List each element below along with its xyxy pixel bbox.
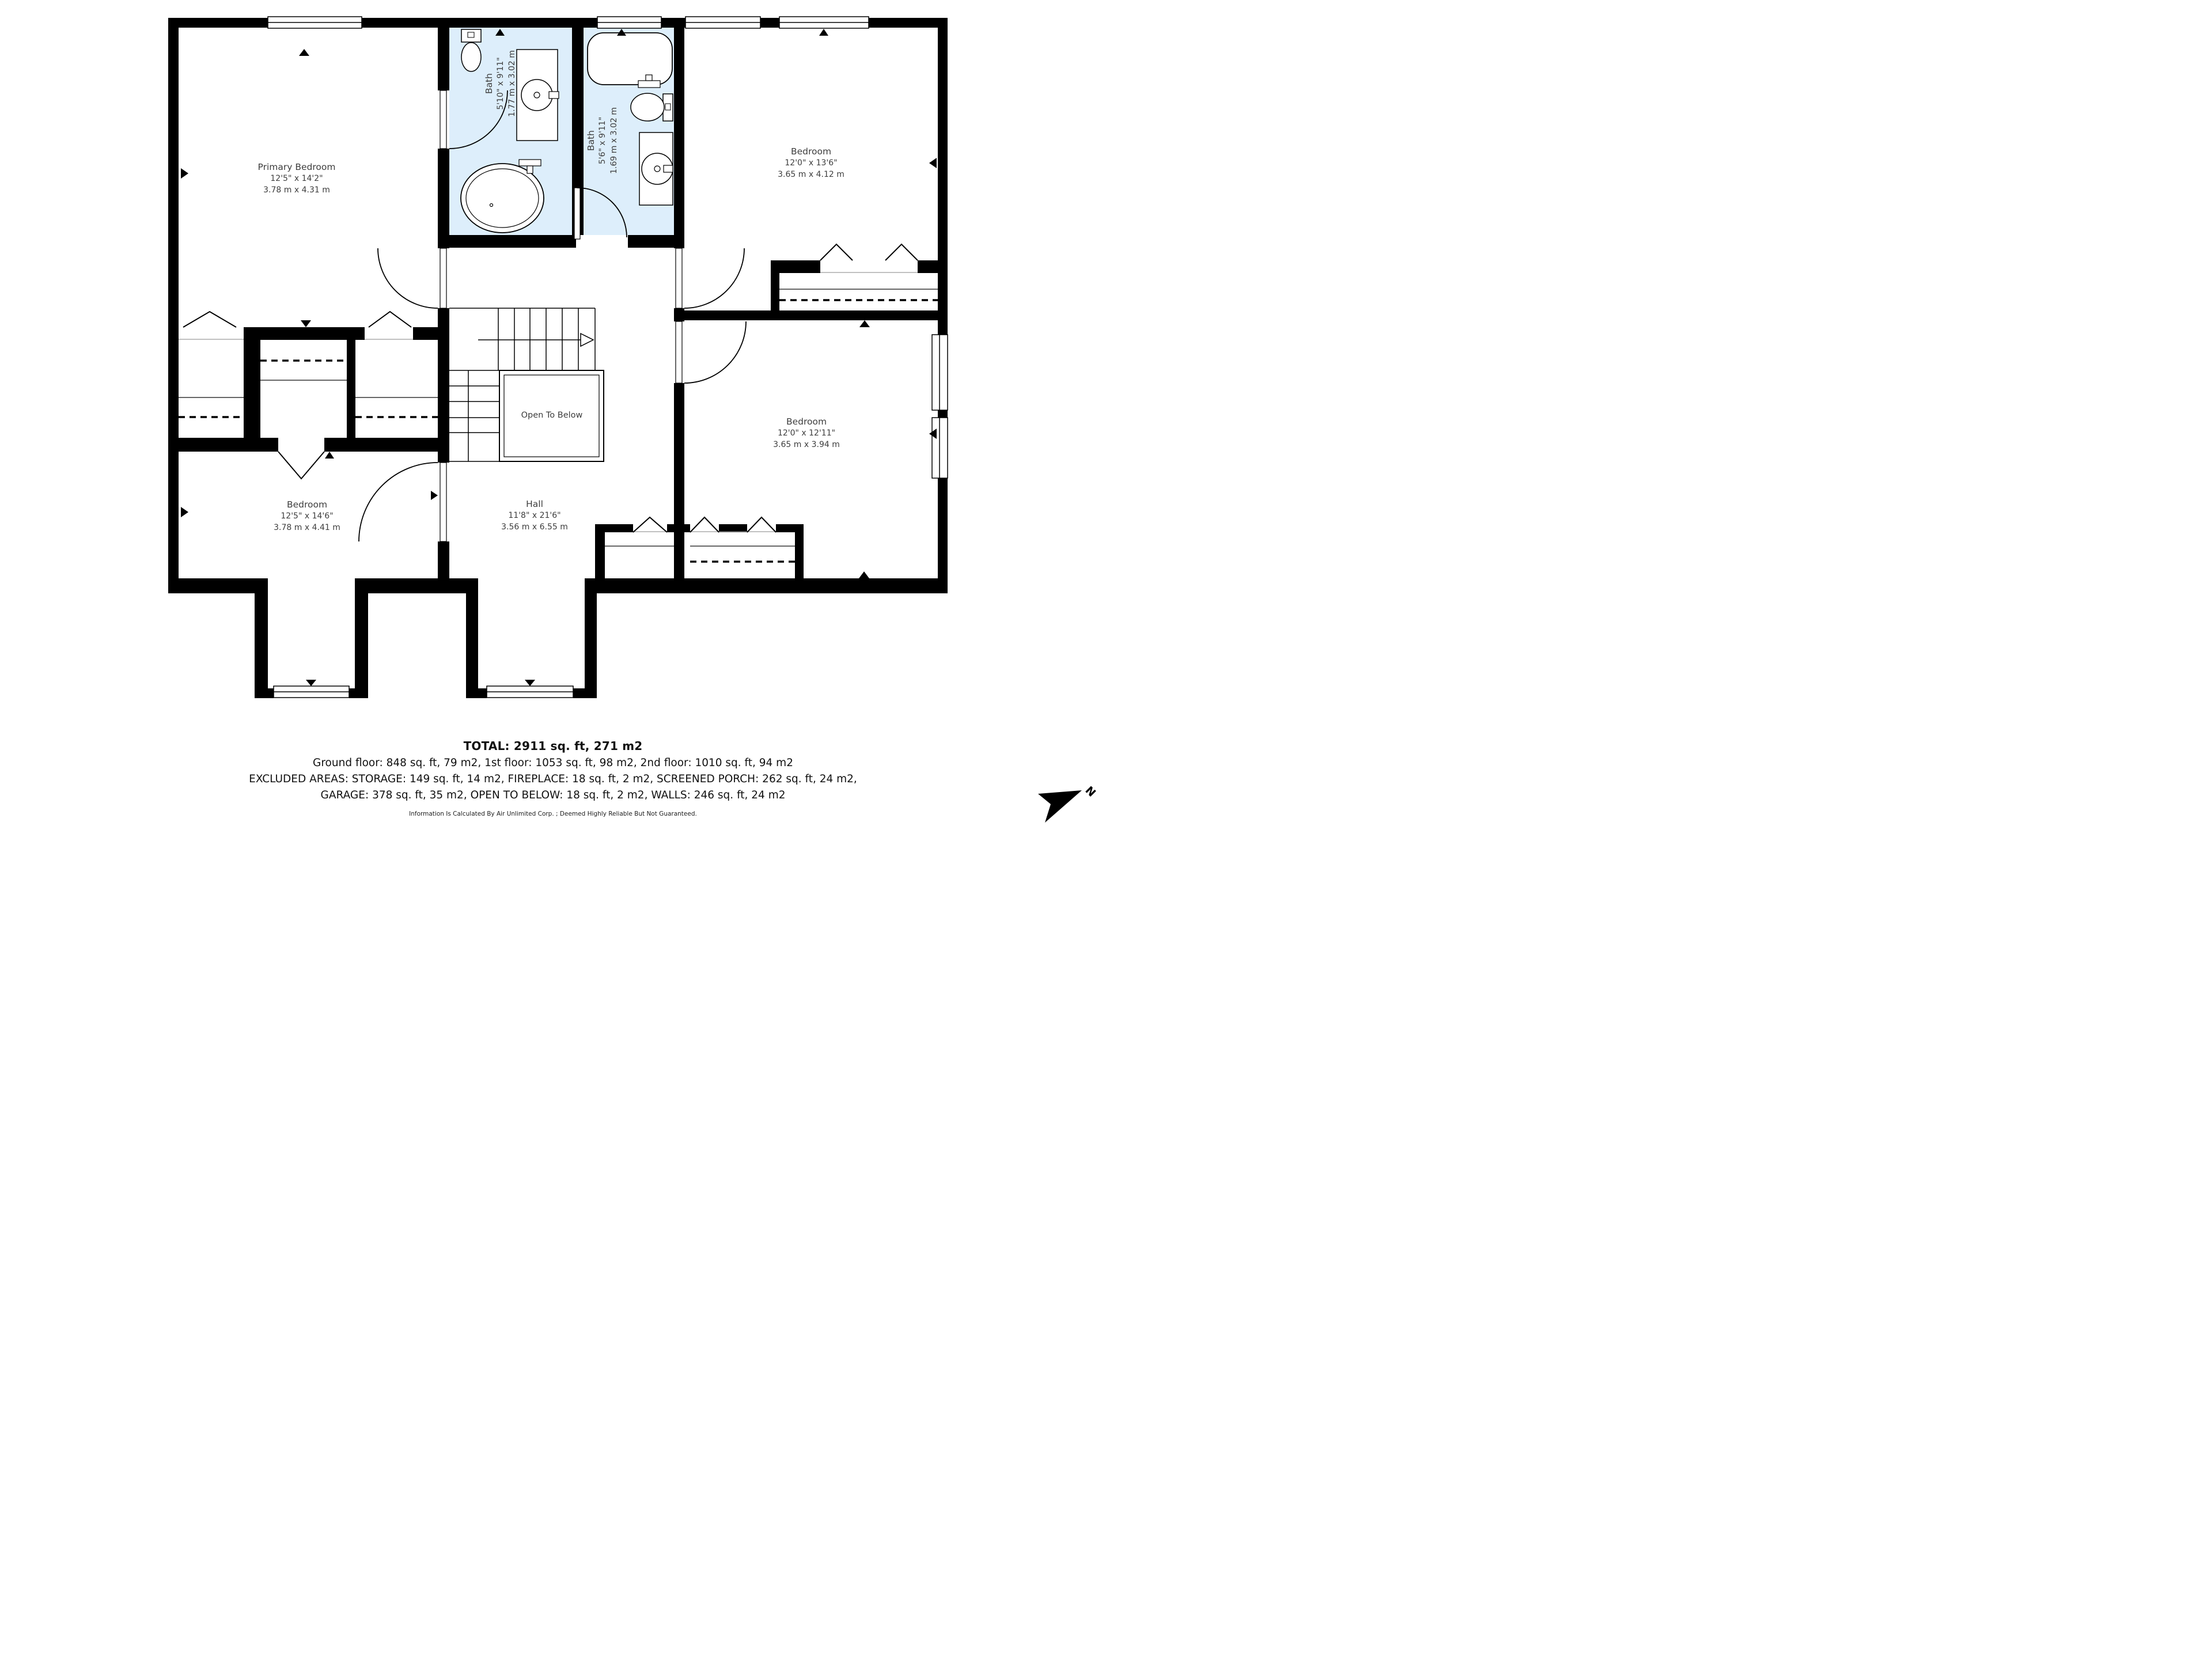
disclaimer-text: Information Is Calculated By Air Unlimit… xyxy=(0,810,1106,817)
label-open-to-below: Open To Below xyxy=(521,411,583,420)
bath2-tub-icon xyxy=(588,33,672,88)
primary-bedroom-door-arc xyxy=(378,248,438,308)
window-middle-bay xyxy=(487,686,573,698)
total-area-text: TOTAL: 2911 sq. ft, 271 m2 xyxy=(0,739,1106,753)
bath1-door-leaf xyxy=(440,90,446,149)
right-bedroom-door-leaf xyxy=(676,321,682,383)
primary-bedroom-door-leaf xyxy=(440,248,446,308)
top-right-bedroom-door-arc xyxy=(684,248,744,308)
window-bedroom-tr-top-1 xyxy=(685,17,760,28)
floor-plan-page: N Primary Bedroom 12'5" x 14'2" 3.78 m x… xyxy=(0,0,1106,829)
floor-areas-text: Ground floor: 848 sq. ft, 79 m2, 1st flo… xyxy=(0,757,1106,769)
bath1-toilet-icon xyxy=(461,29,481,71)
bath2-toilet-icon xyxy=(631,93,673,121)
bottom-left-bedroom-door-leaf xyxy=(440,463,446,541)
window-primary-top xyxy=(268,17,362,28)
window-bedroom-right-1 xyxy=(932,335,948,410)
area-summary: TOTAL: 2911 sq. ft, 271 m2 Ground floor:… xyxy=(0,739,1106,817)
stair-direction-arrow xyxy=(478,334,593,346)
window-bedroom-tr-top-2 xyxy=(779,17,869,28)
window-bedroom-right-2 xyxy=(932,418,948,478)
window-bath2-top xyxy=(597,17,661,28)
right-bedroom-door-arc xyxy=(684,321,746,383)
excluded-areas-text-2: GARAGE: 378 sq. ft, 35 m2, OPEN TO BELOW… xyxy=(0,789,1106,801)
bath1-vanity-sink-icon xyxy=(517,50,559,141)
window-left-bay xyxy=(274,686,349,698)
bottom-left-bedroom-door-arc xyxy=(359,463,438,541)
bath2-door-leaf xyxy=(574,188,580,239)
excluded-areas-text-1: EXCLUDED AREAS: STORAGE: 149 sq. ft, 14 … xyxy=(0,773,1106,785)
top-right-bedroom-door-leaf xyxy=(676,248,682,308)
bath2-vanity-sink-icon xyxy=(639,132,673,205)
